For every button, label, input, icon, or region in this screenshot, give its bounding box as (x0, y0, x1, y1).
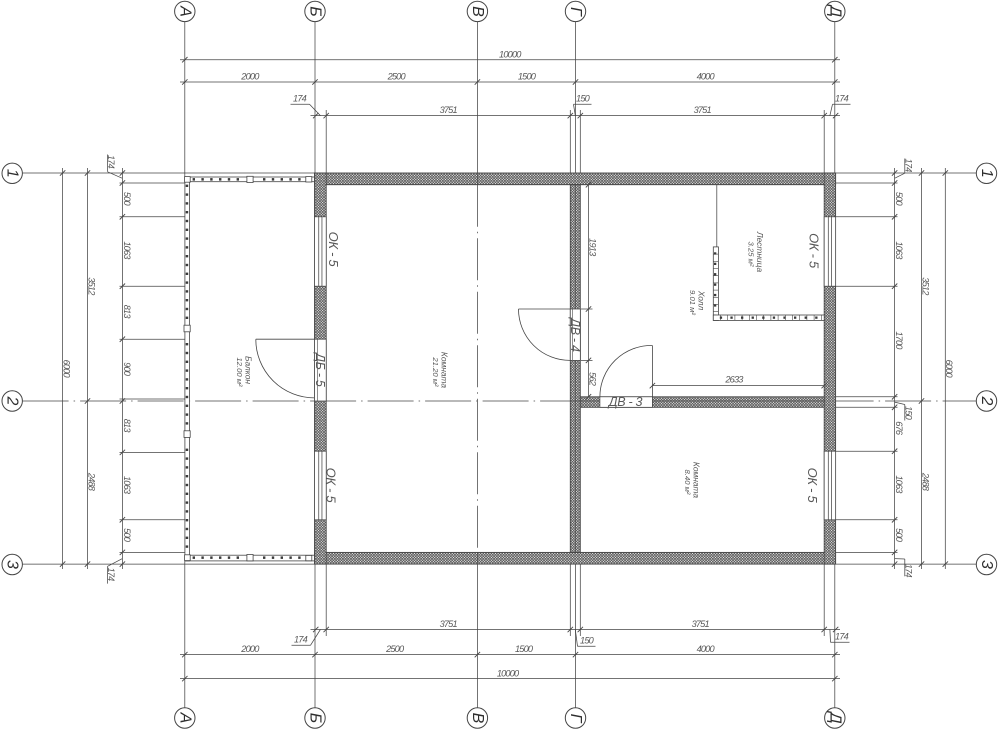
svg-text:6000: 6000 (62, 360, 72, 379)
svg-text:3751: 3751 (440, 105, 458, 115)
svg-text:500: 500 (122, 192, 132, 207)
svg-text:ОК - 5: ОК - 5 (324, 468, 339, 504)
svg-text:4000: 4000 (697, 72, 716, 82)
svg-text:2633: 2633 (724, 375, 744, 385)
svg-text:2488: 2488 (86, 472, 96, 492)
svg-text:3512: 3512 (920, 277, 930, 295)
svg-text:ДБ - 5: ДБ - 5 (313, 351, 327, 387)
svg-text:2488: 2488 (920, 472, 930, 492)
svg-text:2: 2 (4, 396, 21, 406)
svg-text:1063: 1063 (122, 476, 132, 495)
svg-text:Г: Г (567, 714, 584, 724)
svg-text:1063: 1063 (894, 241, 904, 260)
svg-text:2500: 2500 (385, 644, 405, 654)
svg-text:500: 500 (122, 528, 132, 543)
svg-text:813: 813 (122, 305, 132, 320)
svg-text:ОК - 5: ОК - 5 (807, 233, 822, 269)
svg-text:В: В (469, 713, 486, 724)
svg-text:2000: 2000 (240, 644, 260, 654)
svg-text:ДВ - 4: ДВ - 4 (568, 316, 582, 352)
svg-text:1500: 1500 (515, 644, 534, 654)
svg-text:4000: 4000 (697, 644, 716, 654)
svg-text:Балкон12.00 м²: Балкон12.00 м² (235, 356, 254, 387)
svg-text:174: 174 (293, 94, 307, 104)
svg-text:3751: 3751 (694, 105, 712, 115)
svg-text:500: 500 (894, 192, 904, 207)
svg-text:ОК - 5: ОК - 5 (805, 468, 820, 504)
svg-text:ОК - 5: ОК - 5 (326, 232, 341, 268)
svg-text:Комната21.20 м²: Комната21.20 м² (431, 352, 450, 388)
svg-text:150: 150 (580, 636, 595, 646)
svg-text:174: 174 (835, 632, 849, 642)
svg-text:1063: 1063 (894, 475, 904, 494)
svg-text:3751: 3751 (692, 619, 710, 629)
svg-text:10000: 10000 (497, 669, 520, 679)
svg-text:174: 174 (835, 94, 849, 104)
svg-text:676: 676 (894, 421, 904, 436)
svg-text:900: 900 (122, 362, 132, 377)
svg-text:10000: 10000 (499, 50, 522, 60)
svg-text:3: 3 (4, 560, 21, 569)
svg-text:150: 150 (576, 94, 591, 104)
svg-text:3751: 3751 (440, 619, 458, 629)
svg-text:Г: Г (567, 7, 584, 17)
svg-text:Д: Д (826, 4, 843, 17)
svg-text:2500: 2500 (387, 72, 407, 82)
svg-text:3512: 3512 (86, 277, 96, 295)
svg-text:1913: 1913 (588, 238, 598, 257)
svg-text:174: 174 (294, 635, 308, 645)
svg-text:1063: 1063 (122, 241, 132, 260)
svg-text:6000: 6000 (944, 360, 954, 379)
svg-text:В: В (469, 6, 486, 17)
svg-text:ДВ - 3: ДВ - 3 (607, 395, 643, 409)
svg-text:500: 500 (894, 528, 904, 543)
svg-text:Б: Б (307, 713, 324, 723)
svg-text:1500: 1500 (518, 72, 537, 82)
svg-text:1: 1 (978, 169, 995, 178)
svg-text:Б: Б (307, 6, 324, 16)
svg-text:3: 3 (978, 560, 995, 569)
svg-text:А: А (176, 5, 193, 17)
svg-text:1700: 1700 (894, 331, 904, 350)
svg-text:Д: Д (826, 710, 843, 723)
svg-text:А: А (176, 712, 193, 724)
svg-text:1: 1 (4, 169, 21, 178)
svg-text:562: 562 (588, 372, 598, 386)
svg-text:813: 813 (122, 419, 132, 434)
svg-text:2000: 2000 (240, 72, 260, 82)
svg-text:2: 2 (978, 396, 995, 406)
